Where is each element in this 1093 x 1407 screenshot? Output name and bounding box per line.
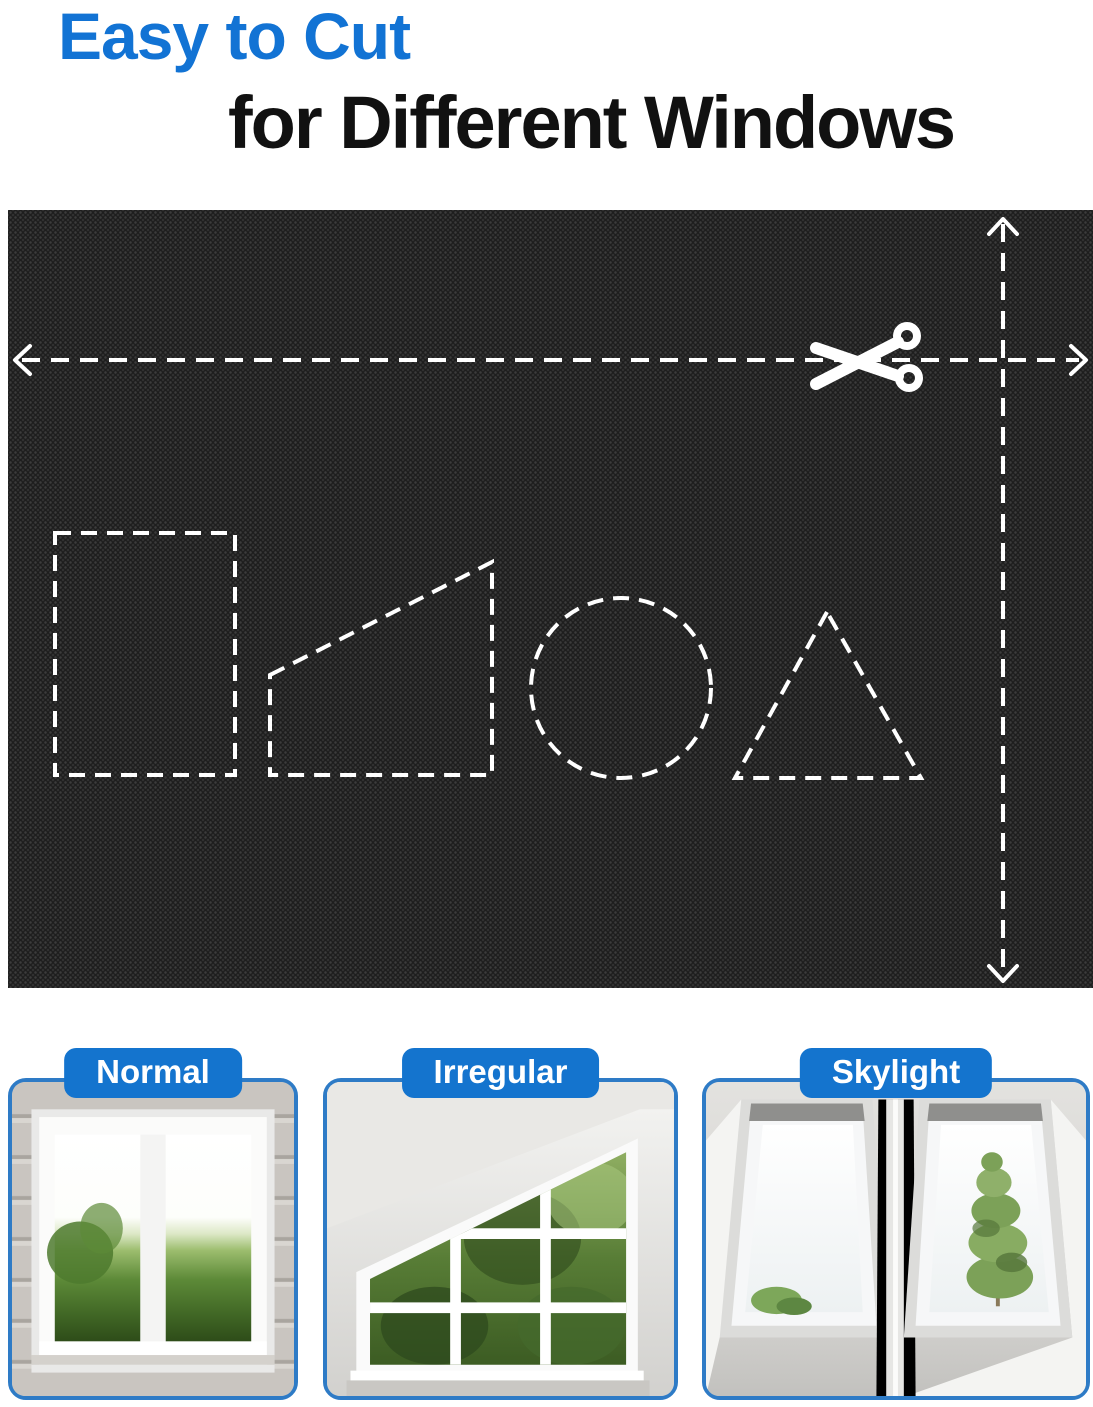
cut-shape-circle [531, 598, 711, 778]
scissors-icon [816, 326, 919, 388]
arrow-down-icon [989, 966, 1017, 981]
window-card-irregular: Irregular [323, 1078, 678, 1400]
cut-shape-triangle [735, 612, 921, 778]
window-card-skylight: Skylight [702, 1078, 1090, 1400]
irregular-window-illustration [327, 1082, 674, 1396]
blackout-fabric-panel [8, 210, 1093, 988]
cut-guides-overlay [8, 210, 1093, 988]
window-type-badge: Skylight [800, 1048, 992, 1098]
cut-shape-trapezoid [270, 562, 492, 775]
product-infographic: Easy to Cut for Different Windows [0, 0, 1093, 1407]
page-title-rest: for Different Windows [228, 84, 954, 162]
window-type-badge: Irregular [402, 1048, 600, 1098]
skylight-window-photo [706, 1082, 1086, 1396]
normal-window-illustration [12, 1082, 294, 1396]
skylight-window-illustration [706, 1082, 1086, 1396]
cut-shape-rectangle [55, 533, 235, 775]
normal-window-photo [12, 1082, 294, 1396]
page-title-accent: Easy to Cut [58, 2, 410, 71]
irregular-window-photo [327, 1082, 674, 1396]
window-type-badge: Normal [64, 1048, 242, 1098]
window-card-normal: Normal [8, 1078, 298, 1400]
